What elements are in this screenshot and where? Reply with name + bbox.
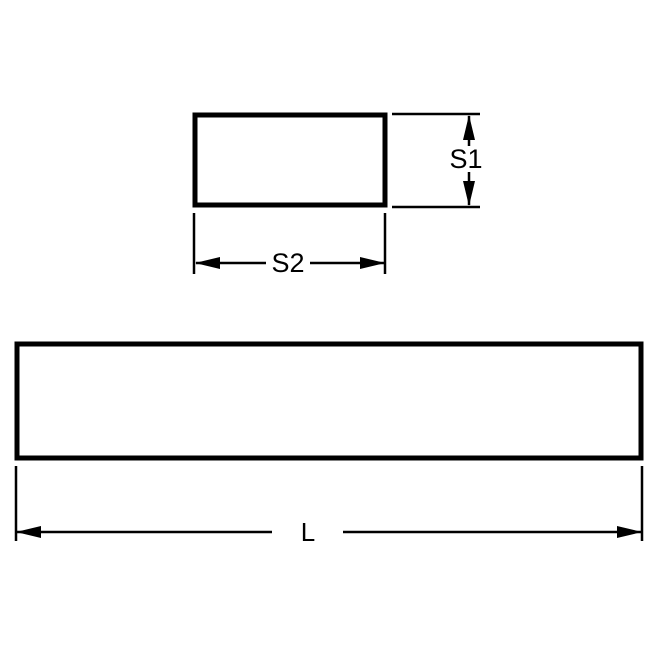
l-arrowhead-left-icon [16, 526, 41, 538]
side-view-outline [17, 344, 641, 458]
cross-section-outline [195, 115, 385, 205]
s1-arrowhead-up-icon [463, 115, 475, 140]
l-dimension: L [16, 466, 642, 547]
s2-label: S2 [271, 248, 304, 278]
drawing-canvas: S1 S2 L [0, 0, 670, 670]
side-view: L [16, 344, 642, 547]
s1-arrowhead-down-icon [463, 181, 475, 206]
s1-dimension: S1 [392, 114, 483, 207]
cross-section-view: S1 S2 [194, 114, 483, 278]
engineering-drawing: S1 S2 L [0, 0, 670, 670]
s2-dimension: S2 [194, 213, 385, 278]
l-arrowhead-right-icon [617, 526, 642, 538]
s1-label: S1 [449, 144, 482, 174]
l-label: L [301, 517, 315, 547]
s2-arrowhead-left-icon [195, 257, 220, 269]
s2-arrowhead-right-icon [360, 257, 385, 269]
